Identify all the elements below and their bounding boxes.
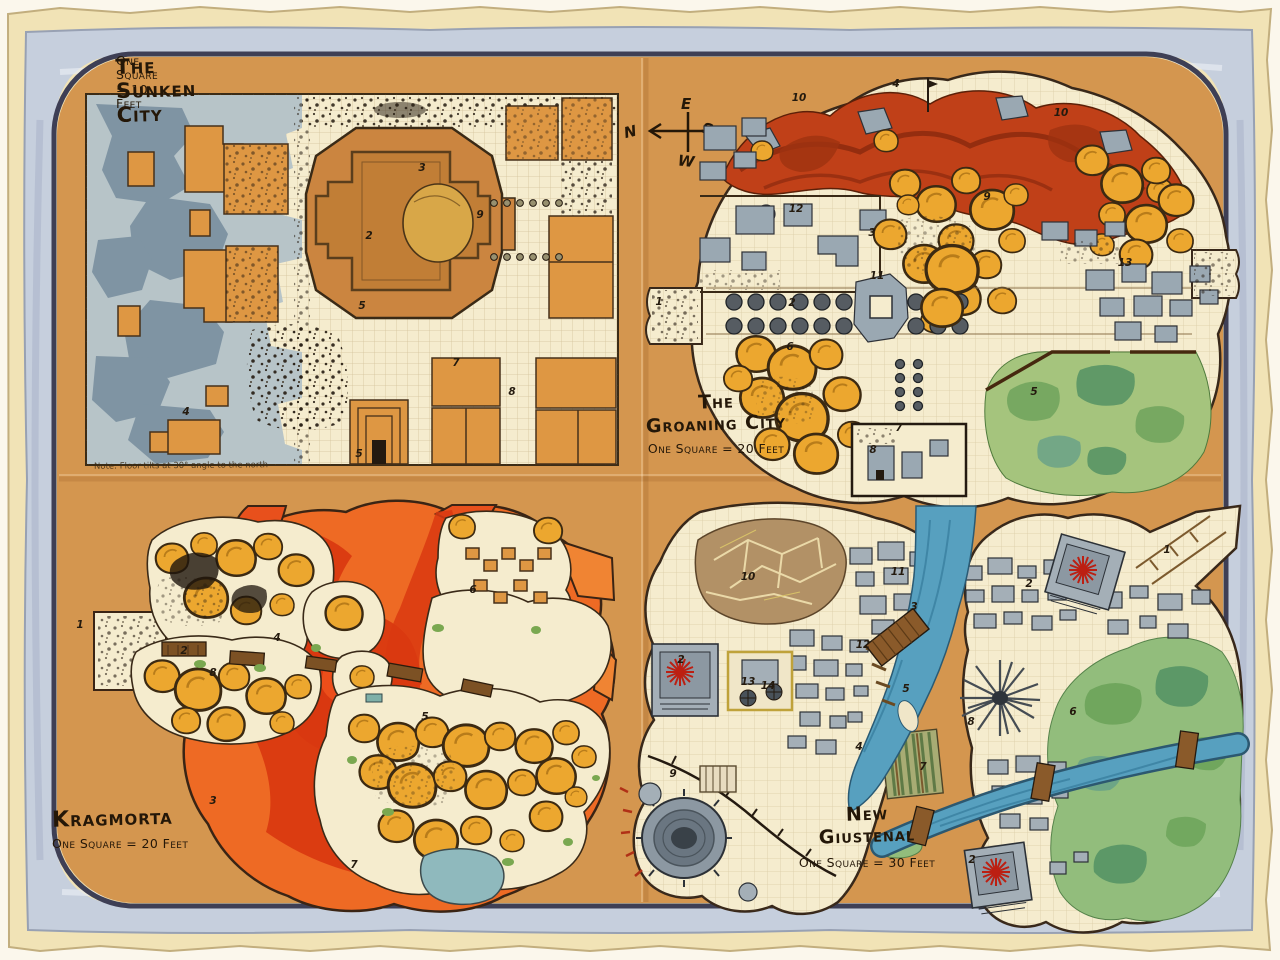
scanned-fantasy-map-page: N E S W <box>0 0 1280 960</box>
rubble-cluster-center <box>247 324 348 430</box>
small-temple <box>350 400 408 464</box>
walled-compound <box>852 424 966 496</box>
garden-quarter <box>985 352 1211 496</box>
compass-east: E <box>681 95 692 113</box>
map-sunken-city <box>86 94 618 465</box>
pond <box>421 849 504 905</box>
cracked-mudflat <box>695 519 846 624</box>
map-artwork: N E S W <box>0 0 1280 960</box>
central-temple <box>306 128 515 318</box>
walled-palace <box>728 652 792 710</box>
west-temple <box>652 644 718 716</box>
